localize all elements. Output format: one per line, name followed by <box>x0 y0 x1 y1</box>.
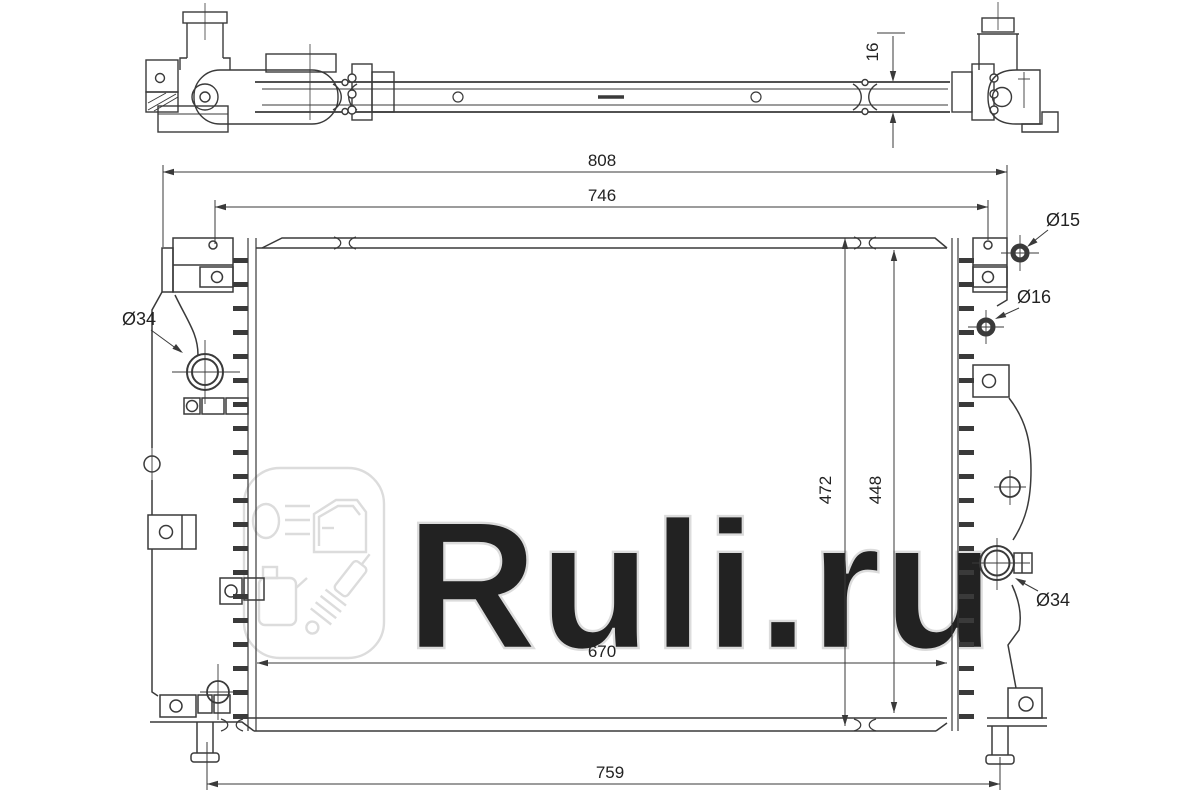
watermark-text: Ruli.ru <box>406 483 996 687</box>
topview-right-fitting <box>952 2 1058 132</box>
radiator-drawing: Ruli.ru <box>0 0 1200 800</box>
dim-label-16: 16 <box>863 43 882 62</box>
right-bolt <box>994 470 1026 505</box>
right-mount-hole <box>984 241 992 249</box>
dim-label-746: 746 <box>588 186 616 205</box>
dia-label-outlet: Ø34 <box>1036 590 1070 610</box>
callout-pin-d15: Ø15 <box>1027 210 1080 247</box>
topview-hole <box>453 92 463 102</box>
dim-overall-width: 808 <box>163 151 1007 250</box>
car-door-icon <box>314 500 366 552</box>
dia-label-inlet: Ø34 <box>122 309 156 329</box>
dia-label-pin16: Ø16 <box>1017 287 1051 307</box>
dim-label-448: 448 <box>866 476 885 504</box>
left-bottom-bracket <box>160 695 196 717</box>
dim-label-670: 670 <box>588 642 616 661</box>
right-mid-bracket <box>973 365 1009 397</box>
right-bottom-bracket <box>1008 688 1042 718</box>
dim-mount-span: 746 <box>215 186 988 244</box>
left-mount-pin <box>191 722 219 762</box>
left-mount-hole <box>209 241 217 249</box>
dim-label-759: 759 <box>596 763 624 782</box>
shock-absorber-icon <box>298 546 379 640</box>
fitting-body <box>194 70 338 124</box>
dia-label-pin15: Ø15 <box>1046 210 1080 230</box>
grille-icon <box>253 504 310 538</box>
oil-can-icon <box>259 567 307 625</box>
pin-d16 <box>968 310 1004 344</box>
dim-label-808: 808 <box>588 151 616 170</box>
dim-pin-span: 759 <box>207 742 1000 790</box>
technical-drawing-page: Ruli.ru <box>0 0 1200 800</box>
topview-hole <box>751 92 761 102</box>
dim-top-thickness: 16 <box>863 33 905 148</box>
callout-outlet-d34: Ø34 <box>1015 578 1070 610</box>
top-view <box>146 2 1058 132</box>
left-inlet-ring <box>172 340 240 404</box>
dim-label-472: 472 <box>816 476 835 504</box>
topview-clip <box>853 80 877 115</box>
